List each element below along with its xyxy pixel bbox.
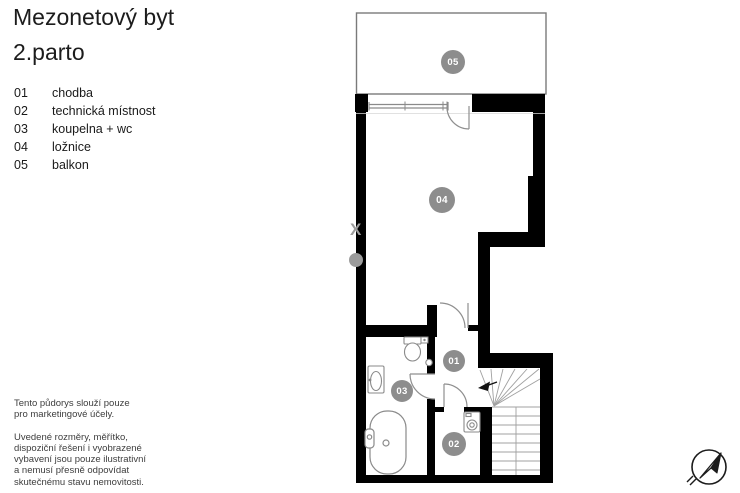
room-marker-technicka: 02: [442, 432, 466, 456]
floor-plan-page: Mezonetový byt 2.parto 01 chodba 02 tech…: [0, 0, 740, 493]
stair-direction-arrow: [478, 382, 497, 392]
floor-plan-drawing: [0, 0, 740, 493]
watermark-letter: X: [350, 220, 361, 240]
room-marker-loznice: 04: [429, 187, 455, 213]
washing-machine: [464, 412, 480, 432]
wall-fixture-small-box: [421, 337, 428, 343]
washbasin: [368, 366, 384, 393]
room-marker-koupelna: 03: [391, 380, 413, 402]
toilet: [404, 337, 421, 361]
bedroom-hall-door: [440, 303, 468, 328]
technical-room-door: [444, 384, 467, 407]
bathroom-door: [410, 374, 435, 399]
watermark-blob: [349, 253, 363, 267]
room-marker-chodba: 01: [443, 350, 465, 372]
room-marker-balkon: 05: [441, 50, 465, 74]
balcony-window: [369, 102, 448, 111]
toilet-roll-holder: [426, 359, 432, 365]
balcony-door: [447, 106, 469, 129]
compass-icon: [687, 450, 726, 485]
bathtub: [365, 411, 406, 474]
